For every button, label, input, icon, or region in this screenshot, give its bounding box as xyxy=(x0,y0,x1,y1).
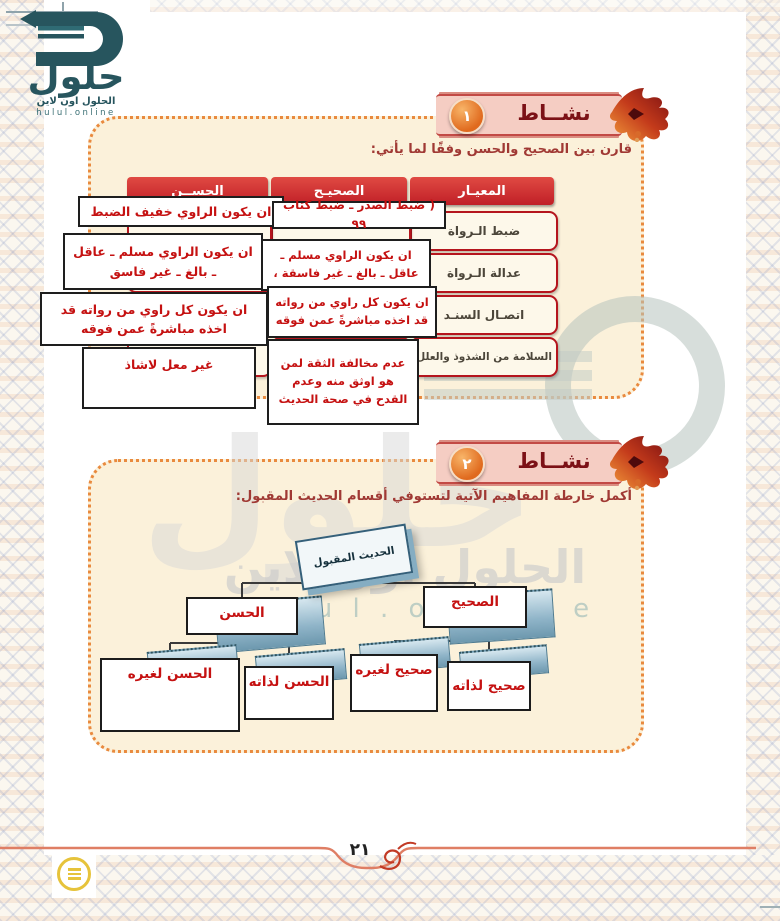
ornamental-border-right xyxy=(746,0,780,921)
ornamental-border-left xyxy=(0,0,44,921)
answer-sahih-dabt: ( ضبط الصدر ـ ضبط كتاب ٩٩ xyxy=(272,201,446,229)
badge-label: نشــاط xyxy=(494,101,614,125)
gold-ring-icon xyxy=(57,857,91,891)
watermark-bar xyxy=(424,389,592,400)
corner-mark xyxy=(760,906,780,908)
page-number: ٢١ xyxy=(344,840,376,860)
answer-sahih-ittisal: ان يكون كل راوي من رواته قد اخذه مباشرةً… xyxy=(267,286,437,338)
map-root-label: الحديث المقبول xyxy=(313,545,396,570)
badge-label: نشــاط xyxy=(494,449,614,473)
criterion-salamah: السلامة من الشذوذ والعلل xyxy=(410,337,558,377)
hulul-logo: حلول الحلول اون لاين hulul.online xyxy=(6,2,166,118)
activity-number-badge: ١ xyxy=(449,98,485,134)
answer-hasan-salamah: غير معل لاشاذ xyxy=(82,347,256,409)
ornamental-border-top xyxy=(150,0,780,12)
activity1-instruction: قارن بين الصحيح والحسن وفقًا لما يأتي: xyxy=(230,142,632,157)
floral-ornament-icon xyxy=(608,434,672,490)
activity2-instruction: أكمل خارطة المفاهيم الآتية لتستوفي أقسام… xyxy=(230,489,632,504)
logo-url-text: hulul.online xyxy=(6,108,146,118)
map-node-hasan-lithatihi: الحسن لذاته xyxy=(244,666,334,720)
gold-emblem xyxy=(52,850,96,898)
logo-arabic-line: الحلول اون لاين xyxy=(6,96,146,107)
badge-bar: ٢ نشــاط xyxy=(436,442,622,484)
map-node-hasan-lighayrihi: الحسن لغيره xyxy=(100,658,240,732)
map-node-sahih-lighayrihi: صحيح لغيره xyxy=(350,654,438,712)
activity-number-badge: ٢ xyxy=(449,446,485,482)
answer-hasan-adalah: ان يكون الراوي مسلم ـ عاقل ـ بالغ ـ غير … xyxy=(63,233,263,290)
answer-hasan-ittisal: ان يكون كل راوي من رواته قد اخذه مباشرةً… xyxy=(40,292,268,346)
logo-brand-text: حلول xyxy=(6,58,146,95)
map-node-hasan: الحسن xyxy=(186,597,298,635)
footer-rule xyxy=(0,836,780,880)
answer-hasan-dabt: ان يكون الراوي خفيف الضبط xyxy=(78,196,284,227)
floral-ornament-icon xyxy=(608,86,672,142)
map-node-sahih: الصحيح xyxy=(423,586,527,628)
answer-sahih-salamah: عدم مخالفة الثقة لمن هو اوثق منه وعدم ال… xyxy=(267,339,419,425)
badge-bar: ١ نشــاط xyxy=(436,94,622,136)
map-node-sahih-lithatihi: صحيح لذاته xyxy=(447,661,531,711)
activity2-badge: ٢ نشــاط xyxy=(436,434,672,488)
answer-sahih-adalah: ان يكون الراوي مسلم ـ عاقل ـ بالغ ـ غير … xyxy=(261,239,431,291)
activity1-badge: ١ نشــاط xyxy=(436,86,672,140)
textbook-page: حلول الحلول اون لاين hulul.online ١ نشــ… xyxy=(0,0,780,921)
